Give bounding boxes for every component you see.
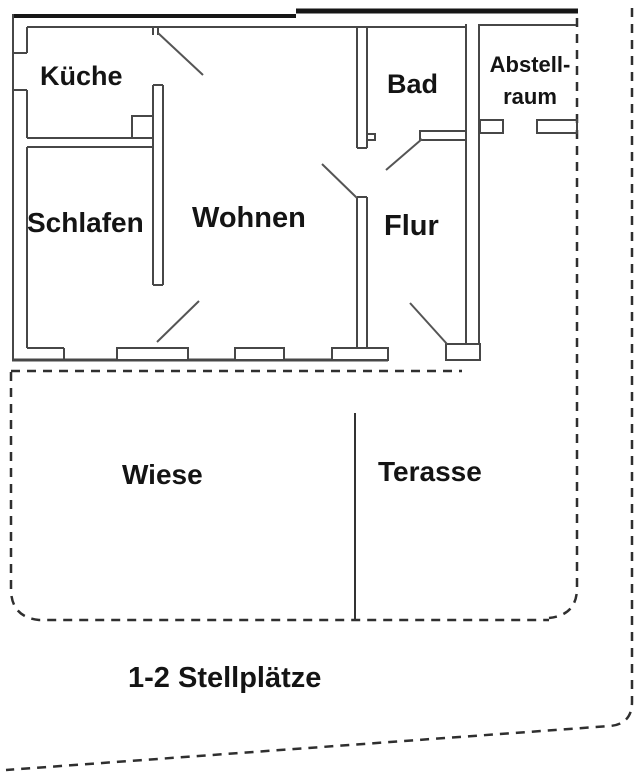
window-sill xyxy=(235,348,284,360)
room-label-abstellraum-line2: raum xyxy=(481,81,579,113)
area-label-terasse: Terasse xyxy=(378,458,482,486)
window-sill xyxy=(117,348,188,360)
floor-plan: Küche Bad Abstell- raum Schlafen Wohnen … xyxy=(0,0,643,780)
duct-block xyxy=(132,116,153,138)
room-label-flur: Flur xyxy=(384,212,439,241)
floor-plan-drawing xyxy=(0,0,643,780)
room-label-kueche: Küche xyxy=(40,63,123,90)
room-label-schlafen: Schlafen xyxy=(27,209,144,237)
top-thick-outline xyxy=(12,11,578,16)
room-label-abstellraum: Abstell- raum xyxy=(481,49,579,113)
room-label-bad: Bad xyxy=(387,71,438,98)
window-sill xyxy=(332,348,388,360)
property-boundary-dashed xyxy=(6,8,632,770)
room-label-wohnen: Wohnen xyxy=(192,204,306,233)
area-label-wiese: Wiese xyxy=(122,461,203,489)
bottom-wall-and-windows xyxy=(12,348,388,360)
room-label-abstellraum-line1: Abstell- xyxy=(481,49,579,81)
area-label-stellplaetze: 1-2 Stellplätze xyxy=(128,664,321,693)
